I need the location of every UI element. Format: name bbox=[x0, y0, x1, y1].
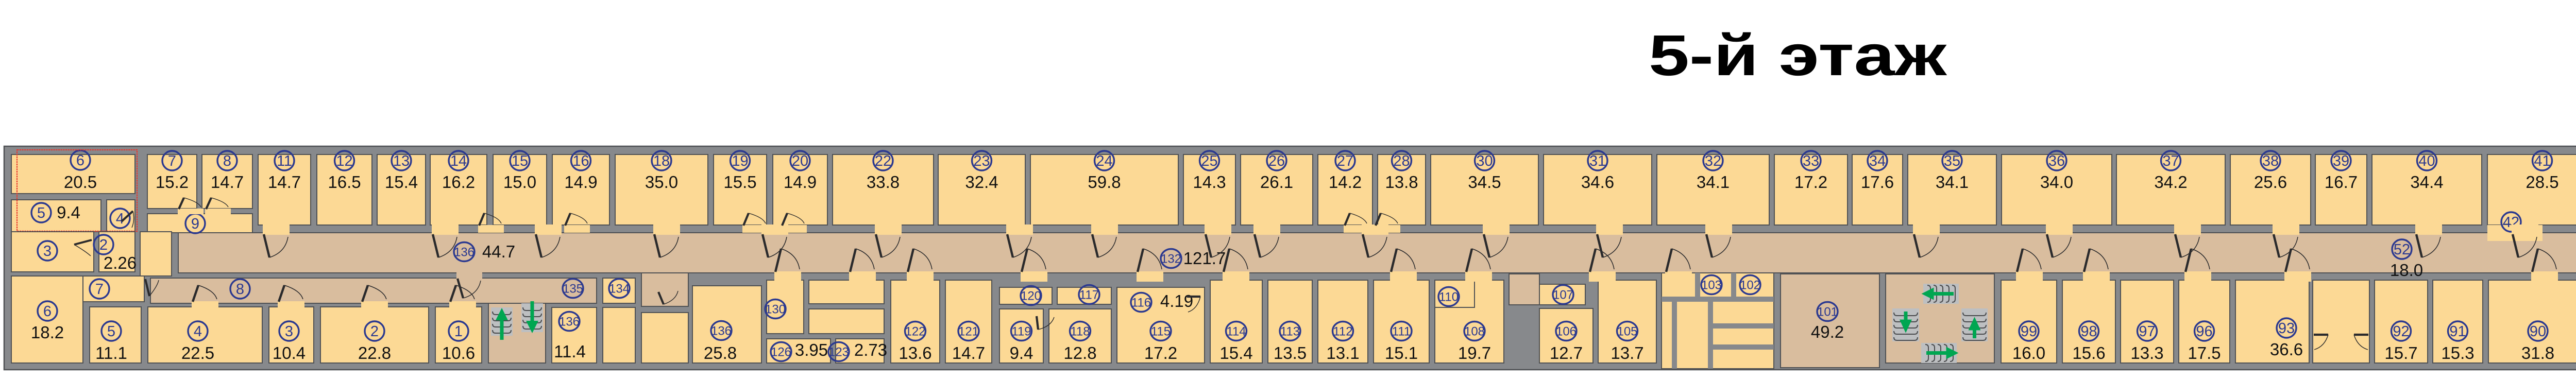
svg-text:44.7: 44.7 bbox=[482, 242, 515, 261]
svg-text:15.7: 15.7 bbox=[2384, 343, 2417, 362]
svg-text:9.4: 9.4 bbox=[1010, 343, 1033, 362]
svg-text:31.8: 31.8 bbox=[2521, 343, 2554, 362]
svg-text:126: 126 bbox=[771, 346, 791, 359]
svg-text:97: 97 bbox=[2139, 323, 2155, 340]
svg-text:2: 2 bbox=[99, 237, 108, 253]
svg-text:130: 130 bbox=[765, 303, 786, 317]
svg-text:34.1: 34.1 bbox=[1936, 172, 1969, 192]
svg-text:24: 24 bbox=[1096, 153, 1112, 169]
svg-text:15.4: 15.4 bbox=[385, 172, 418, 192]
svg-text:14.7: 14.7 bbox=[952, 343, 985, 362]
svg-text:103: 103 bbox=[1701, 279, 1722, 292]
svg-text:3.95: 3.95 bbox=[795, 340, 828, 359]
svg-text:28: 28 bbox=[1393, 153, 1410, 169]
svg-text:105: 105 bbox=[1617, 325, 1637, 339]
svg-text:101: 101 bbox=[1817, 305, 1838, 319]
svg-text:10.4: 10.4 bbox=[273, 343, 306, 362]
svg-text:26: 26 bbox=[1268, 153, 1285, 169]
svg-text:34.0: 34.0 bbox=[2040, 172, 2073, 192]
svg-text:134: 134 bbox=[609, 282, 630, 296]
svg-text:59.8: 59.8 bbox=[1088, 172, 1121, 192]
svg-text:7: 7 bbox=[95, 281, 104, 298]
svg-text:2.73: 2.73 bbox=[854, 340, 887, 359]
svg-text:14: 14 bbox=[450, 153, 467, 169]
svg-text:116: 116 bbox=[1131, 296, 1151, 310]
svg-text:28.5: 28.5 bbox=[2526, 172, 2558, 192]
svg-text:27: 27 bbox=[1337, 153, 1353, 169]
svg-text:136: 136 bbox=[559, 315, 580, 329]
svg-text:35: 35 bbox=[1944, 153, 1960, 169]
svg-text:9: 9 bbox=[191, 216, 199, 232]
svg-text:119: 119 bbox=[1011, 325, 1031, 339]
svg-text:15.4: 15.4 bbox=[1219, 343, 1252, 362]
svg-text:22.5: 22.5 bbox=[181, 343, 214, 362]
svg-text:16.5: 16.5 bbox=[328, 172, 361, 192]
svg-text:92: 92 bbox=[2393, 323, 2409, 340]
svg-text:6: 6 bbox=[76, 152, 84, 169]
svg-text:98: 98 bbox=[2080, 323, 2097, 340]
svg-text:118: 118 bbox=[1070, 325, 1090, 339]
svg-text:99: 99 bbox=[2021, 323, 2037, 340]
svg-text:34.2: 34.2 bbox=[2154, 172, 2187, 192]
svg-text:34.1: 34.1 bbox=[1697, 172, 1730, 192]
svg-text:93: 93 bbox=[2278, 320, 2295, 337]
svg-text:34.6: 34.6 bbox=[1581, 172, 1614, 192]
svg-text:112: 112 bbox=[1333, 325, 1352, 339]
svg-text:17.6: 17.6 bbox=[1861, 172, 1894, 192]
svg-text:90: 90 bbox=[2530, 323, 2546, 340]
svg-text:13.8: 13.8 bbox=[1385, 172, 1418, 192]
svg-text:121.7: 121.7 bbox=[1183, 249, 1226, 268]
svg-text:122: 122 bbox=[905, 325, 925, 339]
svg-text:17.5: 17.5 bbox=[2188, 343, 2221, 362]
svg-text:35.0: 35.0 bbox=[645, 172, 678, 192]
svg-text:14.9: 14.9 bbox=[564, 172, 597, 192]
svg-text:25: 25 bbox=[1201, 153, 1217, 169]
svg-text:22.8: 22.8 bbox=[358, 343, 391, 362]
svg-text:11: 11 bbox=[277, 153, 292, 169]
svg-text:135: 135 bbox=[563, 282, 583, 296]
svg-text:111: 111 bbox=[1392, 325, 1411, 339]
svg-text:13.6: 13.6 bbox=[899, 343, 931, 362]
svg-text:15.2: 15.2 bbox=[156, 172, 189, 192]
svg-text:23: 23 bbox=[973, 153, 990, 169]
svg-text:31: 31 bbox=[1589, 153, 1606, 169]
svg-text:33.8: 33.8 bbox=[867, 172, 900, 192]
svg-text:20: 20 bbox=[792, 153, 808, 169]
svg-text:19: 19 bbox=[732, 153, 748, 169]
svg-text:41: 41 bbox=[2534, 153, 2550, 169]
svg-text:11.4: 11.4 bbox=[554, 342, 586, 361]
svg-text:14.3: 14.3 bbox=[1193, 172, 1226, 192]
svg-text:30: 30 bbox=[1476, 153, 1493, 169]
svg-text:49.2: 49.2 bbox=[1811, 322, 1844, 341]
svg-text:96: 96 bbox=[2196, 323, 2212, 340]
svg-text:11.1: 11.1 bbox=[95, 343, 127, 362]
svg-text:13.5: 13.5 bbox=[1274, 343, 1307, 362]
svg-text:12.7: 12.7 bbox=[1550, 343, 1583, 362]
svg-text:14.9: 14.9 bbox=[784, 172, 817, 192]
svg-text:37: 37 bbox=[2162, 153, 2179, 169]
svg-text:34: 34 bbox=[1869, 153, 1886, 169]
svg-text:15.1: 15.1 bbox=[1385, 343, 1418, 362]
svg-text:40: 40 bbox=[2418, 153, 2435, 169]
svg-text:13.1: 13.1 bbox=[1326, 343, 1359, 362]
svg-text:15.5: 15.5 bbox=[723, 172, 756, 192]
svg-text:16.7: 16.7 bbox=[2325, 172, 2358, 192]
svg-text:113: 113 bbox=[1280, 325, 1300, 339]
svg-text:106: 106 bbox=[1556, 325, 1577, 339]
svg-text:8: 8 bbox=[236, 281, 244, 298]
svg-text:7: 7 bbox=[168, 153, 176, 169]
svg-text:115: 115 bbox=[1151, 325, 1171, 339]
svg-text:13.3: 13.3 bbox=[2130, 343, 2163, 362]
svg-text:34.5: 34.5 bbox=[1468, 172, 1501, 192]
svg-text:10.6: 10.6 bbox=[442, 343, 475, 362]
svg-text:20.5: 20.5 bbox=[64, 172, 97, 192]
svg-text:5: 5 bbox=[37, 205, 45, 221]
svg-text:16.0: 16.0 bbox=[2012, 343, 2045, 362]
svg-text:19.7: 19.7 bbox=[1458, 343, 1491, 362]
svg-text:2: 2 bbox=[370, 323, 379, 340]
svg-text:4: 4 bbox=[194, 323, 202, 340]
svg-text:33: 33 bbox=[1803, 153, 1819, 169]
svg-text:26.1: 26.1 bbox=[1260, 172, 1293, 192]
svg-text:36: 36 bbox=[2048, 153, 2065, 169]
svg-text:14.2: 14.2 bbox=[1329, 172, 1362, 192]
svg-text:120: 120 bbox=[1021, 289, 1041, 303]
svg-text:136: 136 bbox=[711, 324, 732, 338]
svg-text:91: 91 bbox=[2449, 323, 2466, 340]
svg-text:12.8: 12.8 bbox=[1063, 343, 1096, 362]
svg-text:15: 15 bbox=[512, 153, 528, 169]
svg-text:123: 123 bbox=[828, 346, 849, 359]
svg-text:110: 110 bbox=[1439, 290, 1459, 304]
svg-text:25.6: 25.6 bbox=[2254, 172, 2287, 192]
svg-text:121: 121 bbox=[958, 325, 979, 339]
svg-text:108: 108 bbox=[1464, 325, 1485, 339]
svg-text:18.0: 18.0 bbox=[2390, 261, 2423, 280]
svg-text:18.2: 18.2 bbox=[31, 323, 64, 342]
svg-text:6: 6 bbox=[43, 303, 52, 320]
svg-text:25.8: 25.8 bbox=[704, 343, 737, 362]
svg-text:12: 12 bbox=[336, 153, 352, 169]
svg-text:36.6: 36.6 bbox=[2270, 340, 2303, 359]
svg-text:136: 136 bbox=[454, 246, 474, 260]
svg-text:5-й этаж: 5-й этаж bbox=[1649, 23, 1947, 88]
svg-text:14.7: 14.7 bbox=[211, 172, 244, 192]
svg-text:16.2: 16.2 bbox=[442, 172, 475, 192]
svg-text:18: 18 bbox=[653, 153, 670, 169]
svg-text:114: 114 bbox=[1226, 325, 1246, 339]
svg-text:13: 13 bbox=[393, 153, 410, 169]
svg-text:102: 102 bbox=[1740, 279, 1760, 292]
svg-text:52: 52 bbox=[2394, 241, 2410, 258]
svg-text:5: 5 bbox=[107, 323, 115, 340]
svg-text:107: 107 bbox=[1553, 288, 1573, 302]
svg-text:2.26: 2.26 bbox=[104, 253, 137, 272]
svg-text:17.2: 17.2 bbox=[1794, 172, 1827, 192]
svg-text:39: 39 bbox=[2333, 153, 2349, 169]
svg-text:9.4: 9.4 bbox=[57, 203, 80, 222]
svg-text:38: 38 bbox=[2262, 153, 2279, 169]
svg-text:15.0: 15.0 bbox=[503, 172, 536, 192]
svg-text:32: 32 bbox=[1705, 153, 1721, 169]
svg-text:8: 8 bbox=[223, 153, 231, 169]
svg-text:3: 3 bbox=[43, 243, 52, 260]
svg-text:4.19: 4.19 bbox=[1160, 291, 1193, 310]
svg-text:15.6: 15.6 bbox=[2072, 343, 2105, 362]
svg-text:1: 1 bbox=[454, 323, 463, 340]
svg-text:15.3: 15.3 bbox=[2441, 343, 2474, 362]
svg-text:117: 117 bbox=[1079, 288, 1099, 302]
svg-text:14.7: 14.7 bbox=[268, 172, 301, 192]
svg-text:22: 22 bbox=[875, 153, 891, 169]
svg-text:34.4: 34.4 bbox=[2410, 172, 2443, 192]
svg-text:17.2: 17.2 bbox=[1144, 343, 1177, 362]
svg-text:16: 16 bbox=[572, 153, 589, 169]
svg-text:32.4: 32.4 bbox=[965, 172, 998, 192]
svg-text:13.7: 13.7 bbox=[1611, 343, 1643, 362]
svg-text:3: 3 bbox=[285, 323, 293, 340]
svg-text:132: 132 bbox=[1161, 252, 1181, 266]
